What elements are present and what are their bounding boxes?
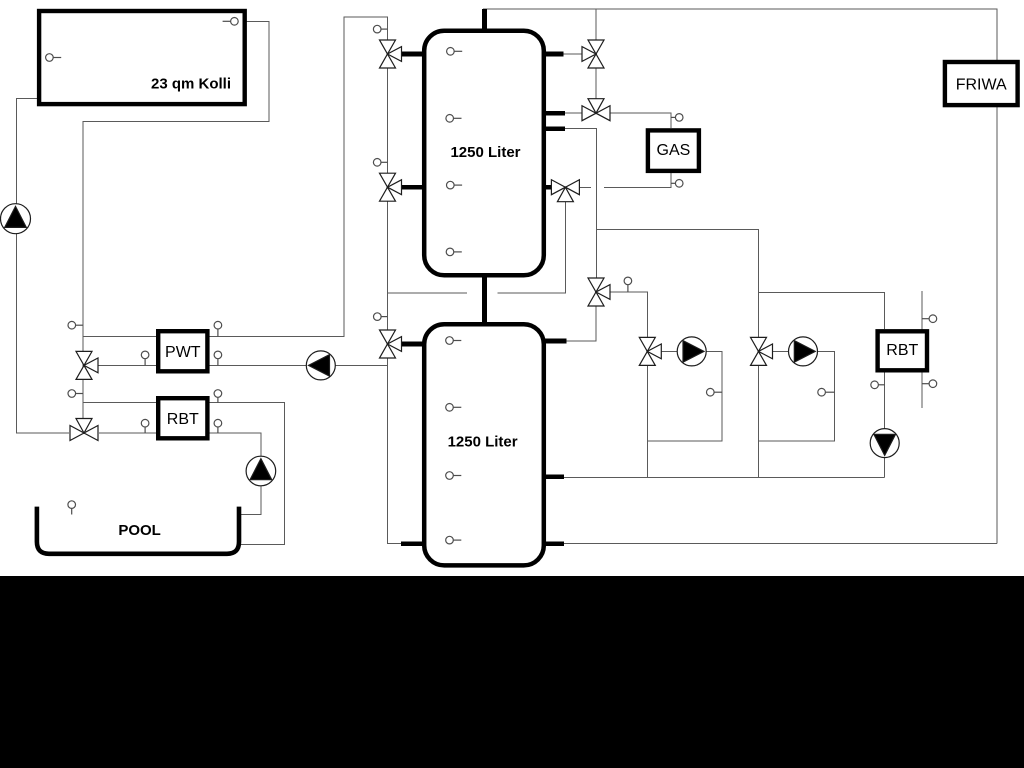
svg-text:PWT: PWT [165,344,201,361]
svg-text:FRIWA: FRIWA [956,77,1007,94]
svg-text:RBT: RBT [886,342,918,359]
svg-text:1250 Liter: 1250 Liter [450,144,520,161]
svg-text:1250 Liter: 1250 Liter [448,434,518,451]
svg-text:23 qm Kolli: 23 qm Kolli [151,76,231,93]
svg-text:RBT: RBT [167,411,199,428]
svg-text:POOL: POOL [118,522,161,539]
svg-text:GAS: GAS [657,142,691,159]
